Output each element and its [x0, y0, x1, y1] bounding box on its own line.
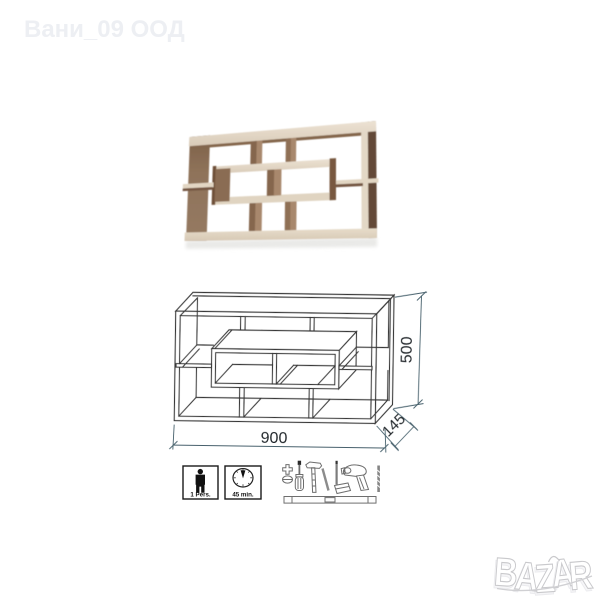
svg-text:900: 900	[261, 430, 288, 447]
svg-text:1 Pers.: 1 Pers.	[190, 492, 211, 499]
svg-text:R: R	[567, 552, 594, 599]
svg-text:500: 500	[399, 336, 416, 363]
svg-text:45 min.: 45 min.	[232, 492, 254, 499]
